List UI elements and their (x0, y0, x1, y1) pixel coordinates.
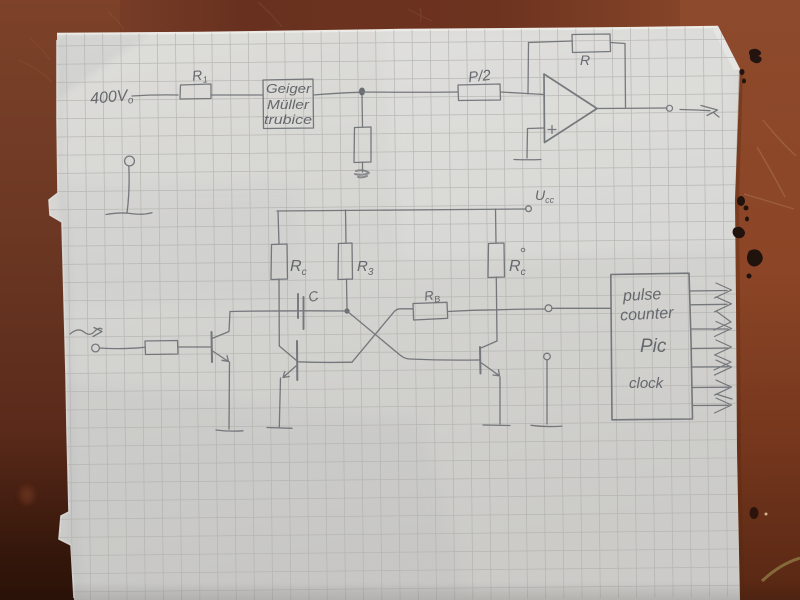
svg-text:P/2: P/2 (467, 67, 492, 86)
svg-text:counter: counter (620, 305, 675, 325)
svg-text:clock: clock (629, 375, 665, 392)
svg-text:Geiger: Geiger (266, 82, 312, 96)
svg-text:R: R (580, 52, 590, 68)
svg-text:pulse: pulse (622, 286, 662, 305)
svg-text:trubice: trubice (264, 113, 312, 127)
svg-text:Pic: Pic (640, 336, 667, 357)
svg-text:Müller: Müller (267, 98, 310, 112)
